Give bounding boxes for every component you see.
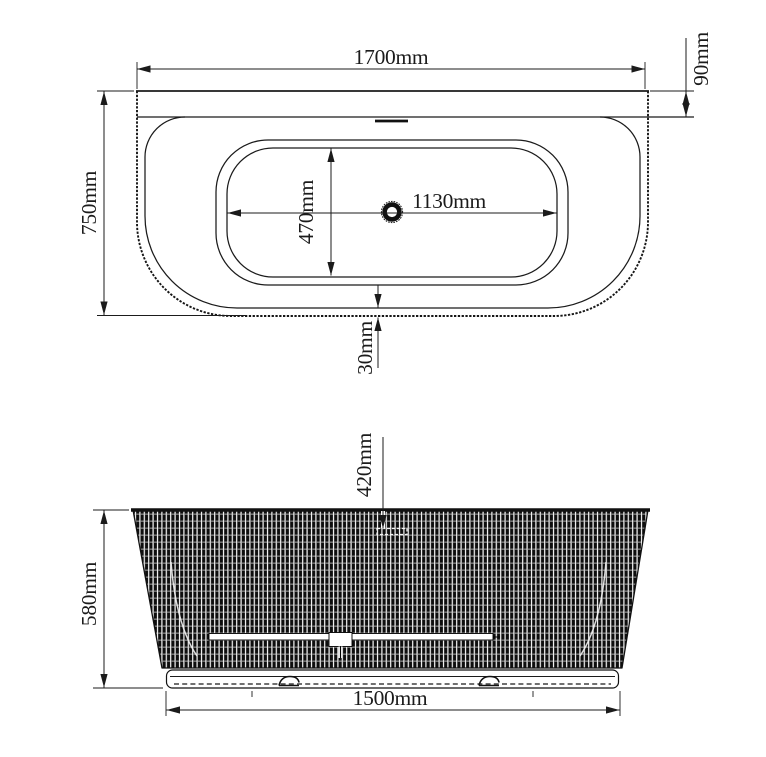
dim-label-basin-width: 470mm	[294, 179, 318, 244]
bathtub-technical-drawing: 1700mm 90mm 750mm 1130mm 470mm	[0, 0, 766, 757]
spec-sheet: 1700mm 90mm 750mm 1130mm 470mm	[0, 0, 766, 757]
dim-base-width: 1500mm	[166, 686, 620, 716]
dim-label-back-deck: 90mm	[689, 32, 713, 86]
dim-label-base-width: 1500mm	[353, 686, 428, 710]
dim-overall-width: 1700mm	[137, 45, 645, 89]
dim-label-overall-width: 1700mm	[354, 45, 429, 69]
dim-label-front-deck: 30mm	[353, 321, 377, 375]
dim-label-basin-length: 1130mm	[412, 189, 486, 213]
tub-body-fluted	[133, 510, 648, 668]
drain	[381, 201, 402, 222]
dim-label-height: 580mm	[77, 561, 101, 626]
dim-label-drain-drop: 420mm	[352, 432, 376, 497]
dim-label-overall-depth: 750mm	[77, 170, 101, 235]
dim-basin-width: 470mm	[294, 149, 331, 276]
dim-front-deck: 30mm	[353, 285, 378, 375]
dim-back-deck: 90mm	[650, 32, 713, 117]
front-view: 580mm 420mm 1500mm	[77, 432, 650, 716]
top-view: 1700mm 90mm 750mm 1130mm 470mm	[77, 32, 713, 375]
